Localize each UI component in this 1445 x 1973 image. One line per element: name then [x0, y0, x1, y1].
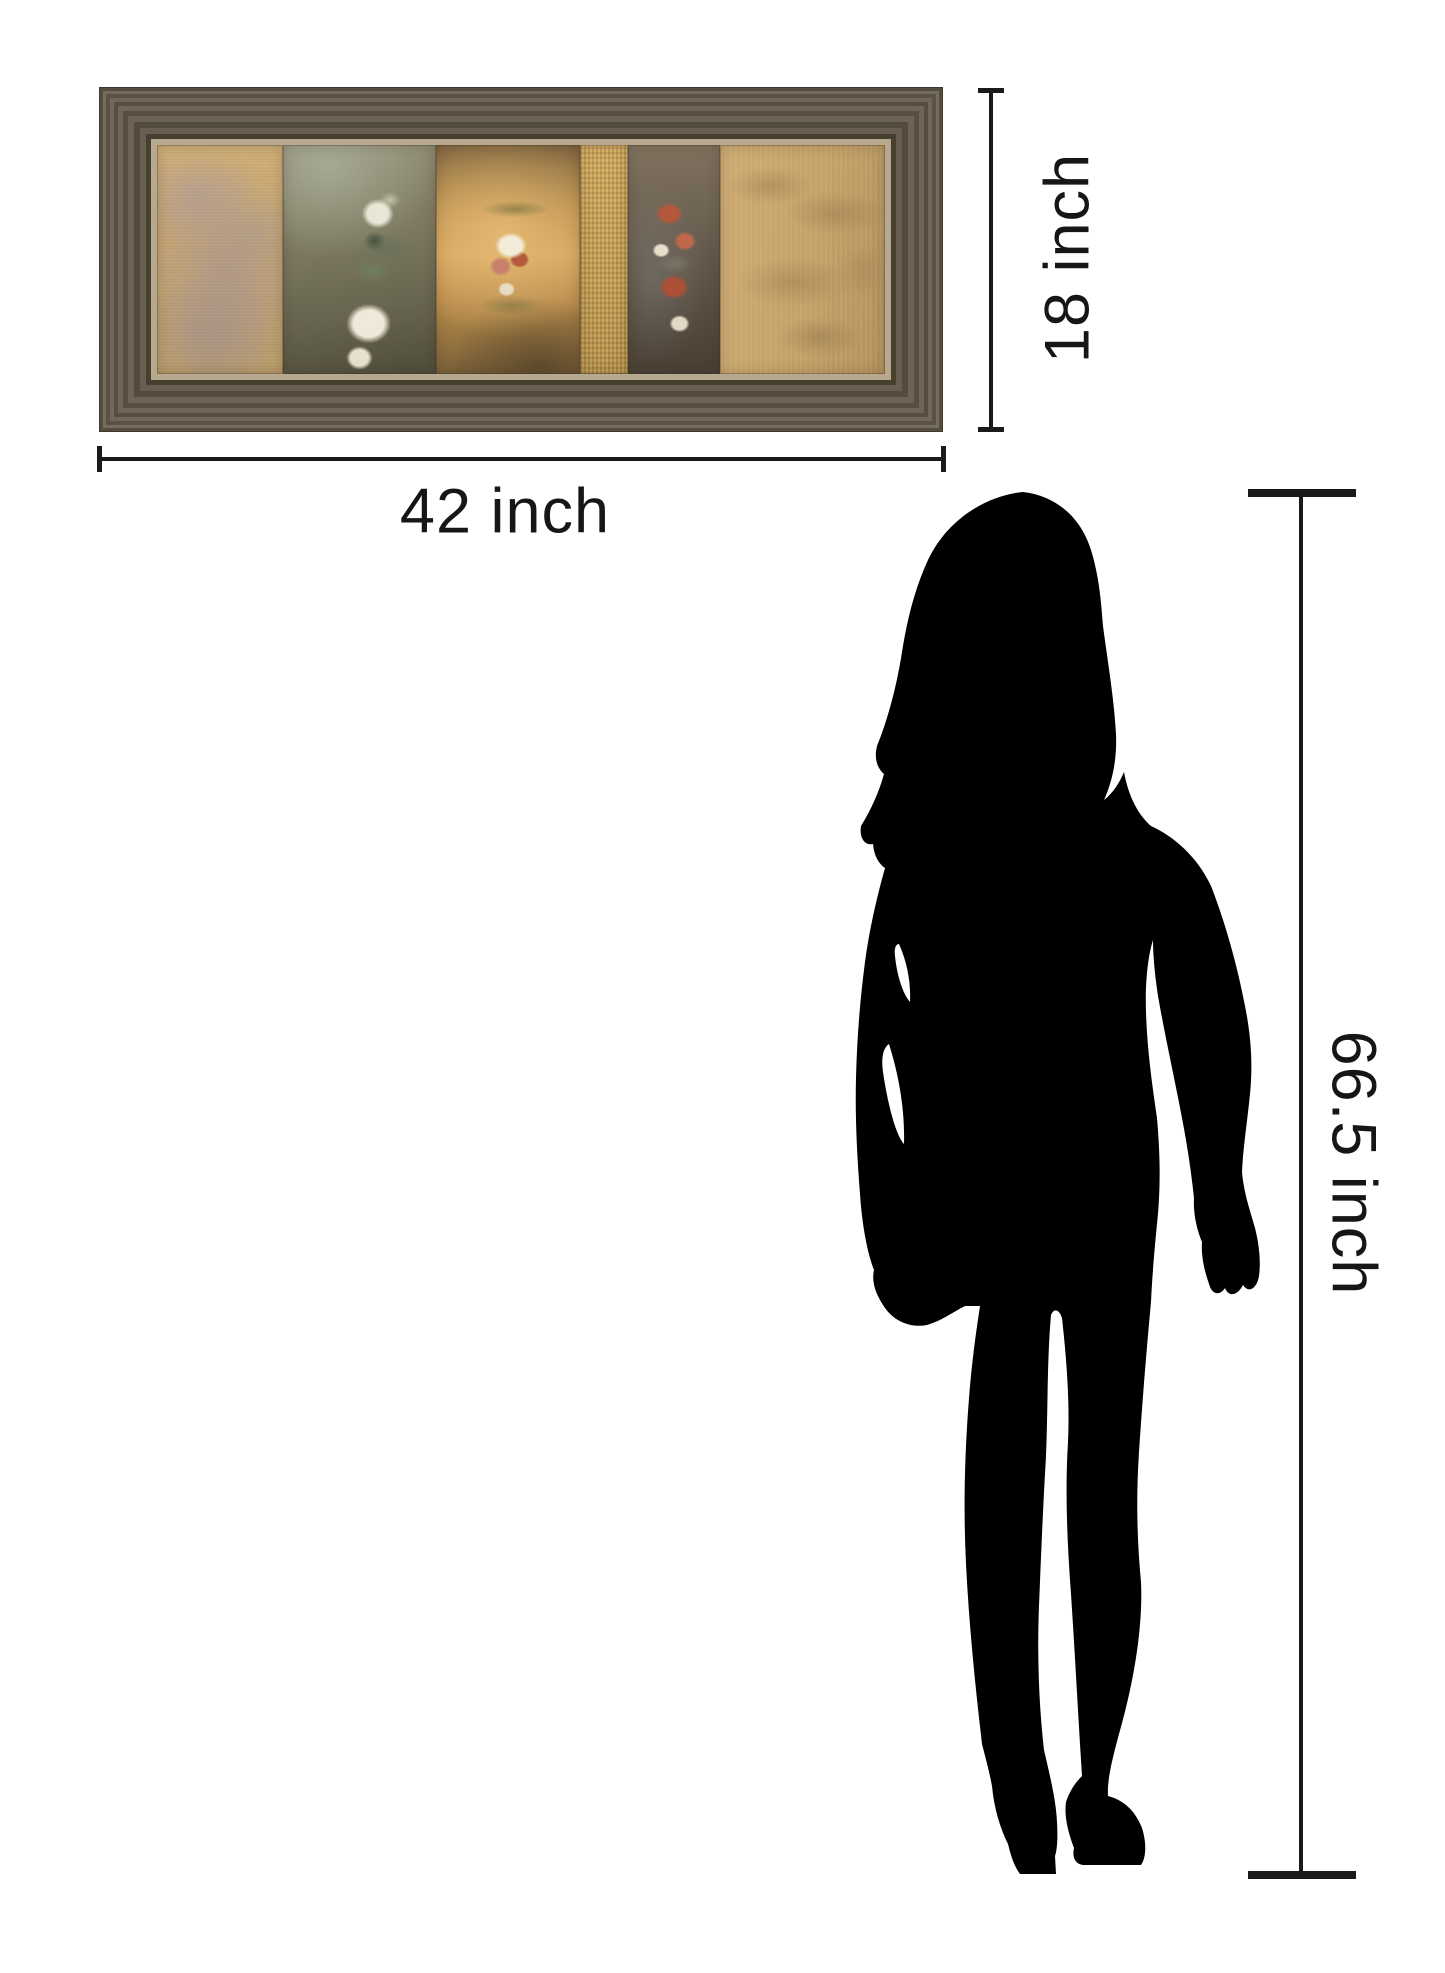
- dark-coral-floral-panel: [628, 145, 720, 374]
- picture-frame: [99, 87, 943, 432]
- width-dimension-tick-left: [97, 446, 102, 472]
- height-dimension-tick-bottom: [978, 427, 1004, 432]
- width-dimension-line: [99, 457, 943, 461]
- width-dimension-label: 42 inch: [400, 481, 610, 544]
- person-height-dimension-line: [1299, 492, 1303, 1876]
- width-dimension-tick-right: [941, 446, 946, 472]
- woman-silhouette-icon: [853, 488, 1265, 1880]
- height-dimension-tick-top: [978, 88, 1004, 93]
- person-height-dimension-label: 66.5 inch: [1322, 1031, 1385, 1296]
- size-comparison-diagram: 42 inch 18 inch 66.5 inch: [0, 0, 1445, 1973]
- amber-floral-panel: [436, 145, 580, 374]
- height-dimension-label: 18 inch: [1037, 153, 1100, 363]
- olive-white-floral-panel: [283, 145, 436, 374]
- gold-texture-strip: [580, 145, 628, 374]
- tan-leaf-shadow-panel: [720, 145, 885, 374]
- damask-tan-panel: [157, 145, 283, 374]
- woman-silhouette-path: [856, 492, 1260, 1874]
- artwork: [157, 145, 885, 374]
- height-dimension-line: [989, 90, 993, 430]
